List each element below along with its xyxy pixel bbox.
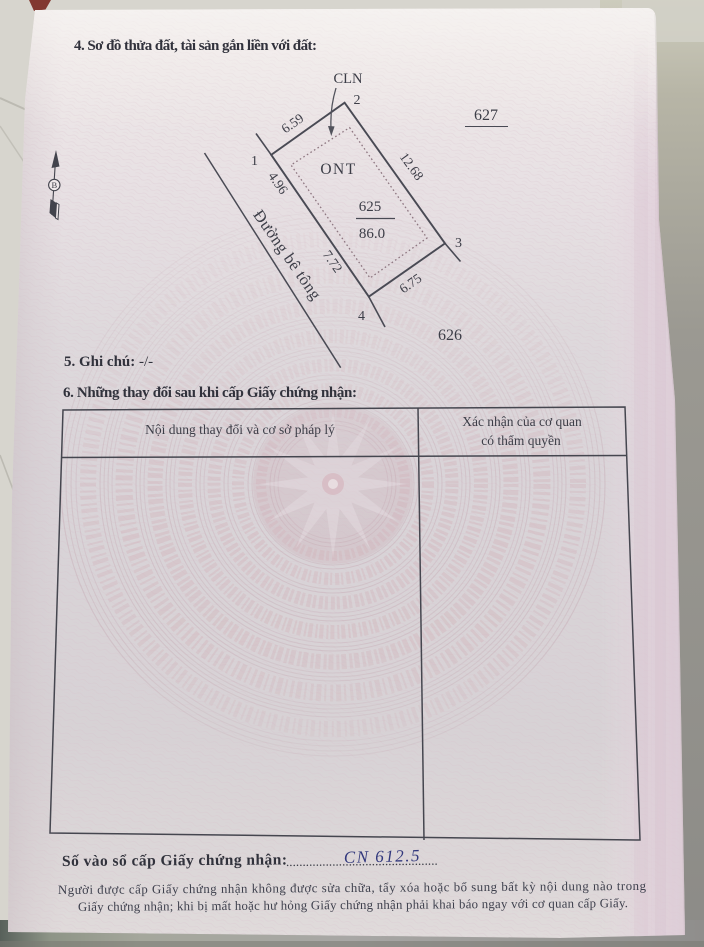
svg-text:86.0: 86.0 (359, 226, 385, 242)
svg-text:625: 625 (359, 199, 382, 215)
svg-text:CN 612.5: CN 612.5 (344, 846, 422, 867)
svg-text:CLN: CLN (334, 71, 364, 87)
svg-text:B: B (51, 180, 57, 190)
svg-text:6. Những thay đổi sau khi cấp: 6. Những thay đổi sau khi cấp Giấy chứng… (63, 385, 357, 401)
svg-text:5. Ghi chú: -/-: 5. Ghi chú: -/- (64, 354, 153, 370)
svg-text:Số vào sổ cấp Giấy chứng nhận:: Số vào sổ cấp Giấy chứng nhận: (62, 851, 287, 870)
svg-text:có thẩm quyền: có thẩm quyền (481, 433, 561, 448)
svg-text:1: 1 (251, 154, 258, 169)
svg-text:ONT: ONT (320, 161, 356, 178)
svg-text:2: 2 (354, 93, 361, 108)
svg-text:4. Sơ đồ thửa đất, tài sản gắn: 4. Sơ đồ thửa đất, tài sản gắn liền với … (74, 38, 317, 54)
svg-text:626: 626 (438, 327, 462, 344)
svg-text:3: 3 (455, 236, 462, 251)
svg-text:627: 627 (474, 107, 498, 124)
svg-text:Nội dung thay đổi và cơ sở phá: Nội dung thay đổi và cơ sở pháp lý (145, 422, 335, 437)
svg-text:Xác nhận của cơ quan: Xác nhận của cơ quan (462, 414, 582, 429)
svg-text:4: 4 (358, 309, 365, 324)
